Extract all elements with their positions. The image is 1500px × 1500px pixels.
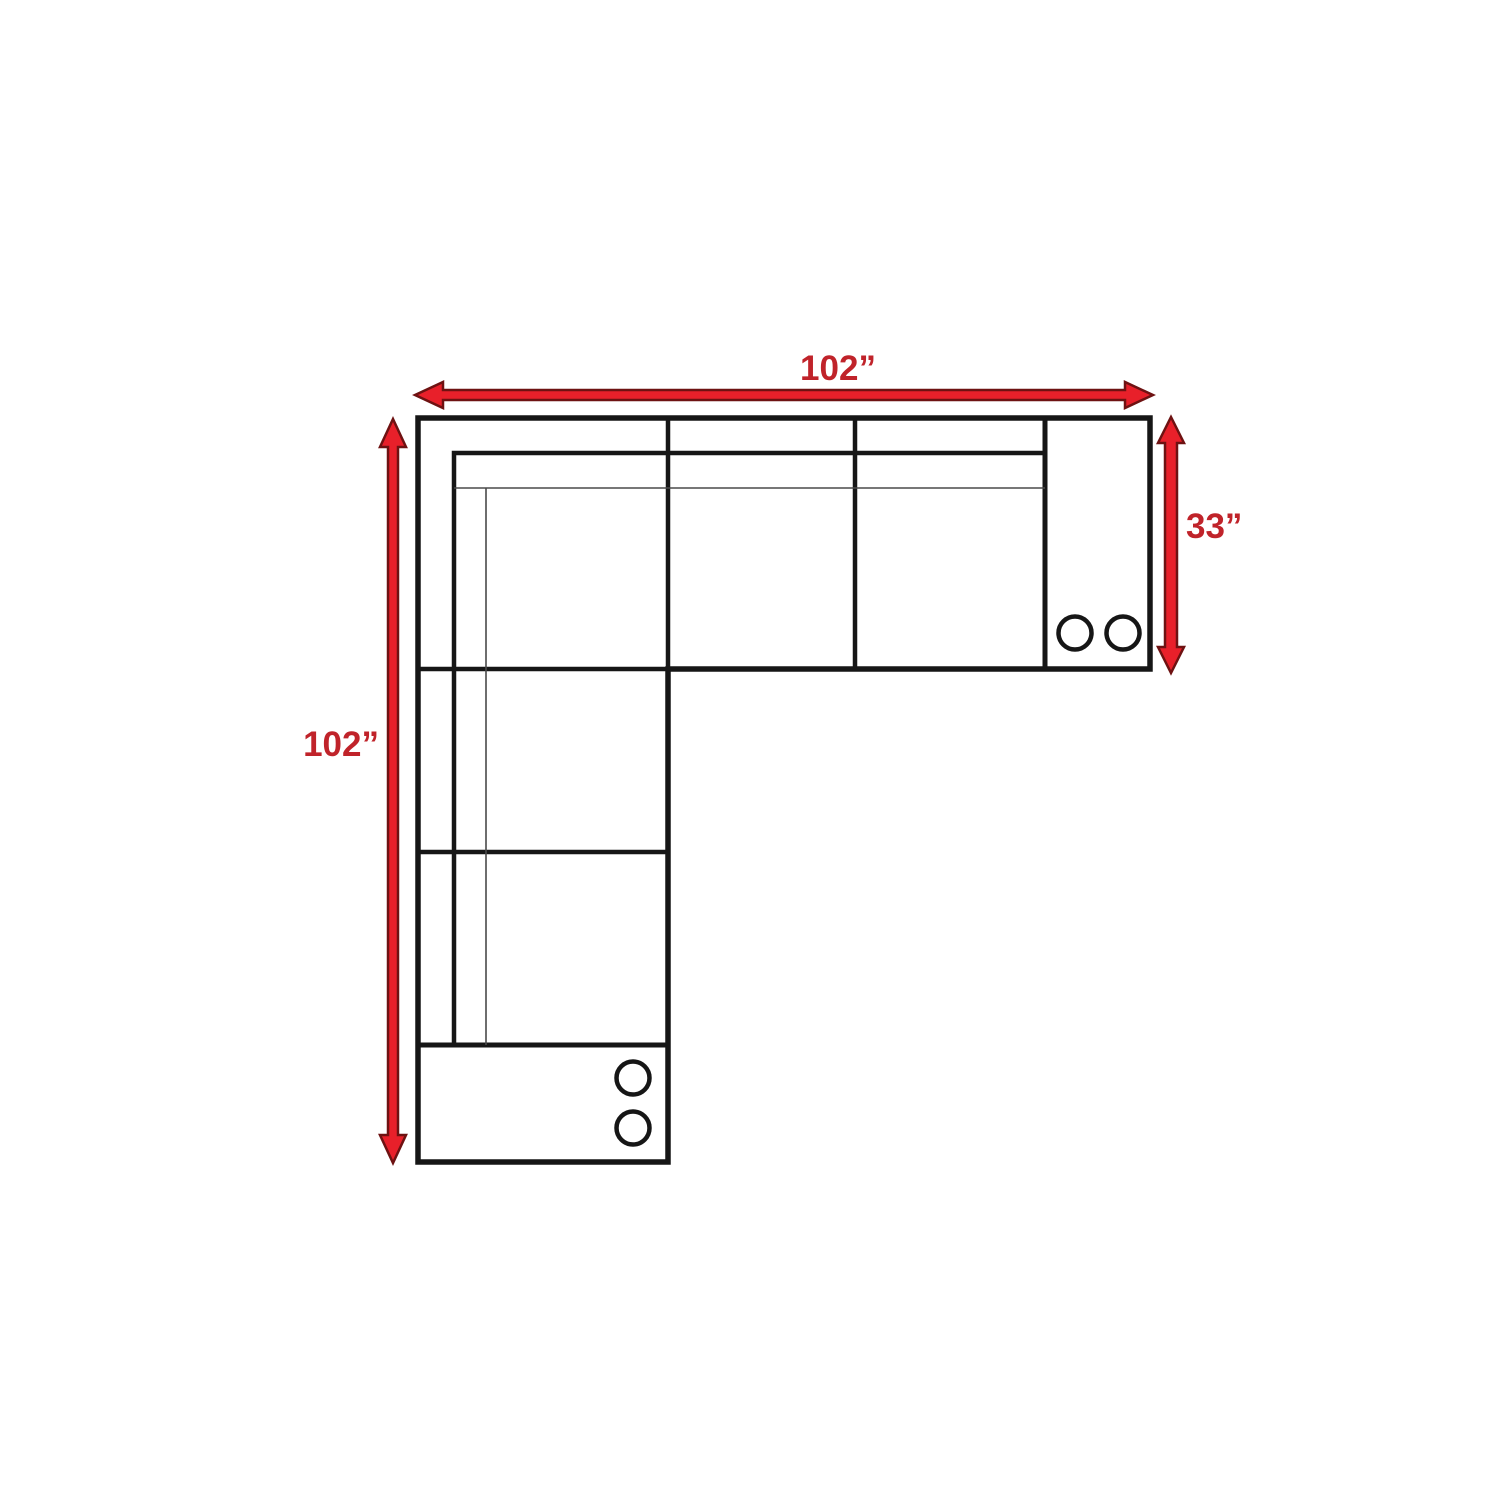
sofa-dimension-diagram: 102” 102” 33” (0, 0, 1500, 1500)
cupholder-circle-right-2 (1107, 617, 1140, 650)
left-dimension-label: 102” (303, 725, 379, 764)
dimension-right: 33” (1158, 417, 1242, 673)
right-dimension-label: 33” (1186, 507, 1242, 546)
top-dimension-arrow (415, 382, 1153, 408)
dimension-left: 102” (303, 419, 406, 1163)
cupholder-circle-bottom-1 (617, 1062, 650, 1095)
right-dimension-arrow (1158, 417, 1184, 673)
cupholder-circle-bottom-2 (617, 1112, 650, 1145)
backrest-inner-line (454, 453, 1045, 1045)
sofa-outer-boundary (418, 418, 1150, 1162)
diagram-svg: 102” 102” 33” (0, 0, 1500, 1500)
sofa-outline (418, 418, 1150, 1162)
dimension-top: 102” (415, 349, 1153, 408)
left-dimension-arrow (380, 419, 406, 1163)
top-dimension-label: 102” (800, 349, 876, 388)
cupholder-circle-right-1 (1059, 617, 1092, 650)
